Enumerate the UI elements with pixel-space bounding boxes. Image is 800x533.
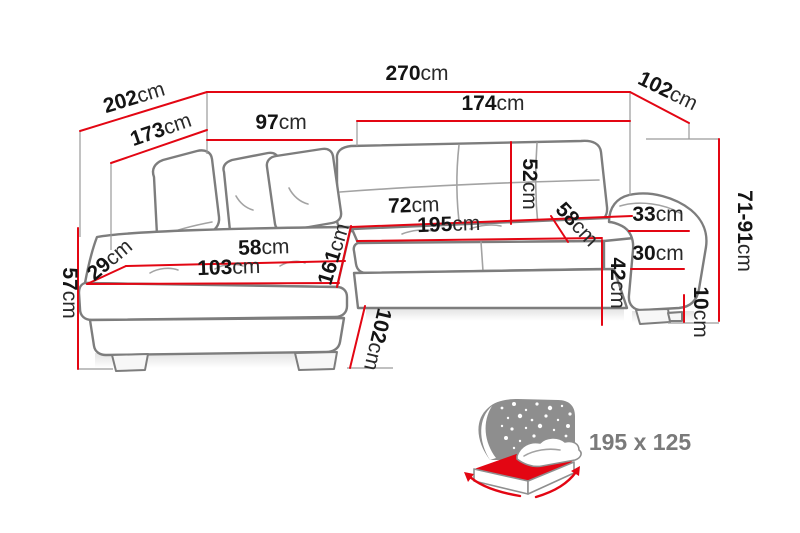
seat-platform [354,269,627,308]
diagram-canvas: 270cm 202cm 173cm 97cm 174cm 102cm 71-91… [0,0,800,533]
dim-left-depth-overall: 202cm [101,78,168,118]
chaise-front-face [79,283,347,320]
sleep-function-icon [464,399,581,497]
length-arrow-head [464,472,474,482]
chaise-plinth [90,318,344,355]
pillow-right [267,149,341,231]
dimension-line-103 [87,283,339,284]
dim-right-depth: 102cm [634,67,701,115]
dim-seat-height: 42cm [606,257,629,308]
dim-overall-width: 270cm [385,62,448,85]
chaise-leg-left [112,354,148,371]
dim-back-height-range: 71-91cm [733,190,756,272]
armrest-leg [636,309,670,324]
dim-bed-length: 195cm [417,212,481,237]
sofa-drawing [79,141,706,371]
dim-armrest-bottom-width: 30cm [632,242,683,265]
dim-chaise-seat-length: 103cm [197,255,261,280]
dim-left-back-width: 97cm [255,111,306,134]
dim-armrest-top-width: 33cm [632,203,683,226]
dim-chaise-depth: 102cm [359,306,396,373]
dim-backrest-height: 52cm [518,158,541,209]
seat-front-cushion [354,241,604,273]
armrest-leg-foot [668,312,682,321]
chaise-leg-right [295,352,337,370]
dim-leg-height: 10cm [689,286,712,337]
dim-left-depth: 173cm [127,109,194,151]
sofa-dimension-diagram: 270cm 202cm 173cm 97cm 174cm 102cm 71-91… [0,0,800,533]
shadow-right-section [366,308,624,321]
bed-size-label: 195 x 125 [589,429,692,455]
dim-chaise-height: 57cm [58,267,81,318]
dim-right-back-width: 174cm [461,92,524,115]
